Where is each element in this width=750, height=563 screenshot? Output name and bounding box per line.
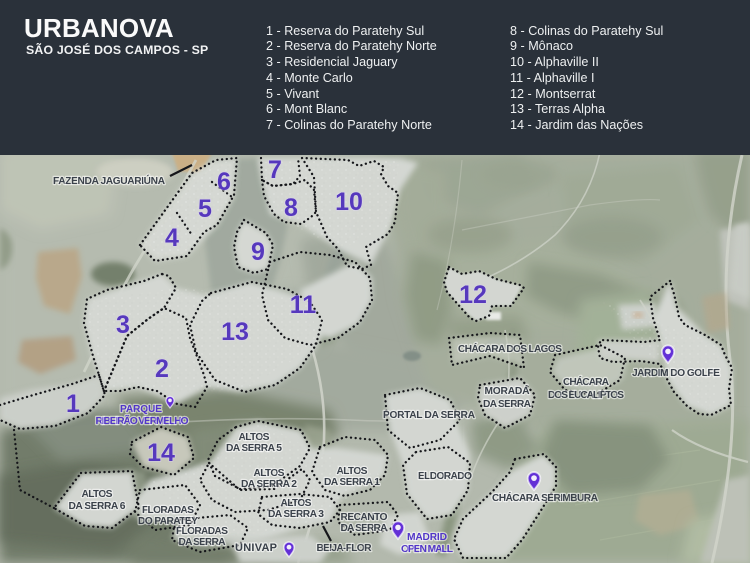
svg-text:4: 4 <box>165 224 179 252</box>
svg-text:DA SERRA: DA SERRA <box>341 523 389 534</box>
svg-text:9: 9 <box>251 238 265 266</box>
svg-text:CHÁCARA SERIMBURA: CHÁCARA SERIMBURA <box>492 491 599 504</box>
svg-text:PARQUE: PARQUE <box>120 404 162 415</box>
svg-text:RECANTO: RECANTO <box>341 512 388 523</box>
svg-text:DA SERRA 6: DA SERRA 6 <box>69 501 126 512</box>
svg-text:ALTOS: ALTOS <box>254 468 285 479</box>
svg-text:MORADÁ: MORADÁ <box>485 384 531 397</box>
svg-text:ELDORADO: ELDORADO <box>418 471 472 482</box>
svg-text:MADRID: MADRID <box>407 532 447 543</box>
svg-text:1: 1 <box>66 390 80 418</box>
svg-text:RIBEIRÃO VERMELHO: RIBEIRÃO VERMELHO <box>96 414 189 427</box>
svg-text:7: 7 <box>268 156 282 184</box>
svg-text:BEIJA-FLOR: BEIJA-FLOR <box>317 543 373 554</box>
svg-text:DA SERRA 1: DA SERRA 1 <box>324 477 380 488</box>
svg-text:11: 11 <box>290 291 317 319</box>
svg-text:13: 13 <box>221 318 249 346</box>
svg-text:PORTAL DA SERRA: PORTAL DA SERRA <box>383 410 476 421</box>
svg-text:ALTOS: ALTOS <box>82 489 113 500</box>
svg-text:UNIVAP: UNIVAP <box>235 542 277 554</box>
svg-text:2: 2 <box>155 355 169 383</box>
svg-text:10: 10 <box>335 188 363 216</box>
svg-text:DA SERRA 5: DA SERRA 5 <box>226 443 282 454</box>
svg-text:8: 8 <box>284 194 298 222</box>
svg-text:ALTOS: ALTOS <box>337 466 368 477</box>
svg-text:6: 6 <box>217 168 231 196</box>
svg-text:FLORADAS: FLORADAS <box>176 526 228 537</box>
svg-text:CHÁCARA: CHÁCARA <box>563 375 610 388</box>
svg-text:DA SERRA 3: DA SERRA 3 <box>268 509 324 520</box>
svg-text:5: 5 <box>198 195 212 223</box>
svg-text:14: 14 <box>147 439 175 467</box>
svg-text:DA SERRA: DA SERRA <box>483 399 532 410</box>
svg-text:3: 3 <box>116 311 130 339</box>
svg-text:FLORADAS: FLORADAS <box>142 505 194 516</box>
svg-text:CHÁCARA DOS LAGOS: CHÁCARA DOS LAGOS <box>458 342 562 355</box>
svg-text:JARDIM DO GOLFE: JARDIM DO GOLFE <box>632 368 720 379</box>
svg-text:OPEN MALL: OPEN MALL <box>401 544 453 555</box>
svg-text:12: 12 <box>459 281 487 309</box>
svg-text:DA SERRA: DA SERRA <box>179 537 227 548</box>
svg-text:ALTOS: ALTOS <box>239 432 270 443</box>
svg-text:ALTOS: ALTOS <box>281 498 312 509</box>
svg-text:DA SERRA 2: DA SERRA 2 <box>241 479 297 490</box>
svg-text:DOS EUCALIPTOS: DOS EUCALIPTOS <box>548 390 624 401</box>
svg-text:FAZENDA JAGUARIÚNA: FAZENDA JAGUARIÚNA <box>53 174 166 187</box>
